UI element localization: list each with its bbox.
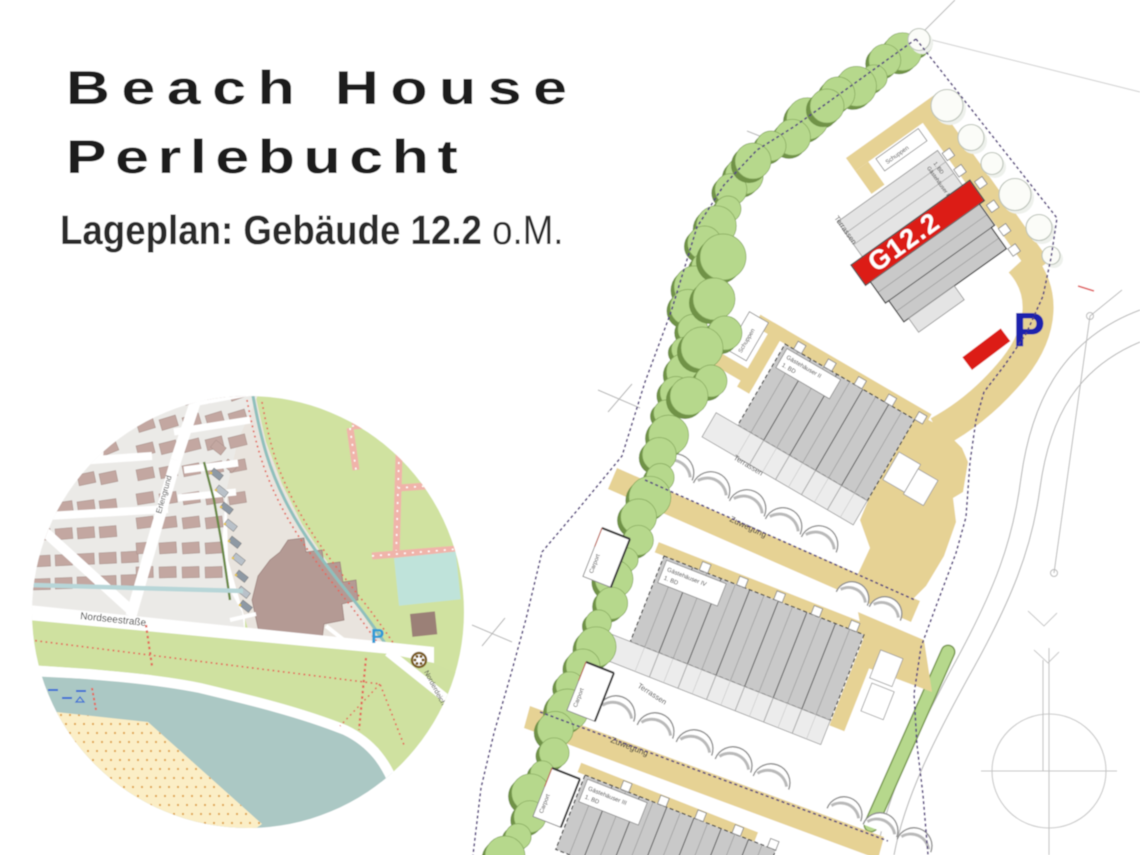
- svg-text:Lageplan: Gebäude 12.2 o.M.: Lageplan: Gebäude 12.2 o.M.: [60, 208, 563, 253]
- svg-text:Beach House: Beach House: [66, 61, 579, 114]
- svg-text:P: P: [371, 626, 384, 648]
- svg-text:P: P: [1013, 304, 1045, 357]
- svg-text:Perlebucht: Perlebucht: [66, 130, 466, 183]
